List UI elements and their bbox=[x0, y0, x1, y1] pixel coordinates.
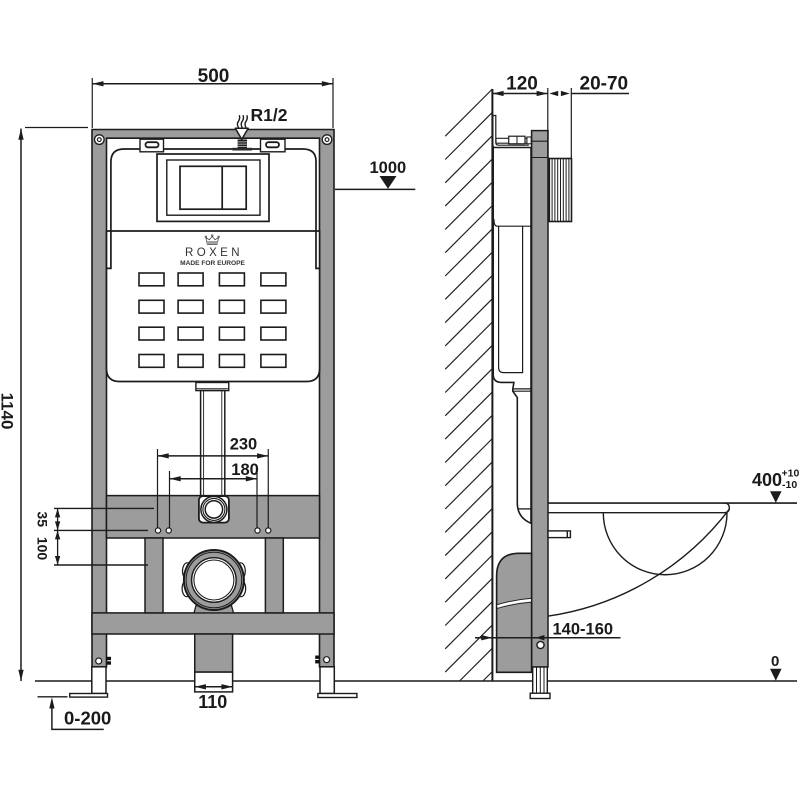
svg-text:35: 35 bbox=[35, 511, 51, 527]
svg-text:ROXEN: ROXEN bbox=[185, 247, 243, 259]
svg-text:100: 100 bbox=[35, 537, 51, 561]
svg-text:500: 500 bbox=[198, 66, 230, 87]
svg-text:120: 120 bbox=[506, 73, 538, 94]
svg-text:1000: 1000 bbox=[370, 159, 407, 177]
svg-text:230: 230 bbox=[230, 435, 258, 453]
svg-text:110: 110 bbox=[198, 692, 227, 712]
svg-text:0: 0 bbox=[771, 653, 779, 670]
svg-text:R1/2: R1/2 bbox=[251, 105, 288, 125]
svg-text:0-200: 0-200 bbox=[64, 707, 111, 728]
svg-text:20-70: 20-70 bbox=[580, 73, 629, 94]
svg-text:1140: 1140 bbox=[0, 393, 17, 430]
svg-text:+10: +10 bbox=[782, 468, 800, 480]
svg-text:140-160: 140-160 bbox=[553, 621, 614, 639]
svg-text:180: 180 bbox=[231, 461, 259, 479]
svg-text:400: 400 bbox=[752, 470, 782, 490]
svg-text:-10: -10 bbox=[782, 479, 797, 491]
svg-text:MADE FOR EUROPE: MADE FOR EUROPE bbox=[180, 260, 245, 267]
